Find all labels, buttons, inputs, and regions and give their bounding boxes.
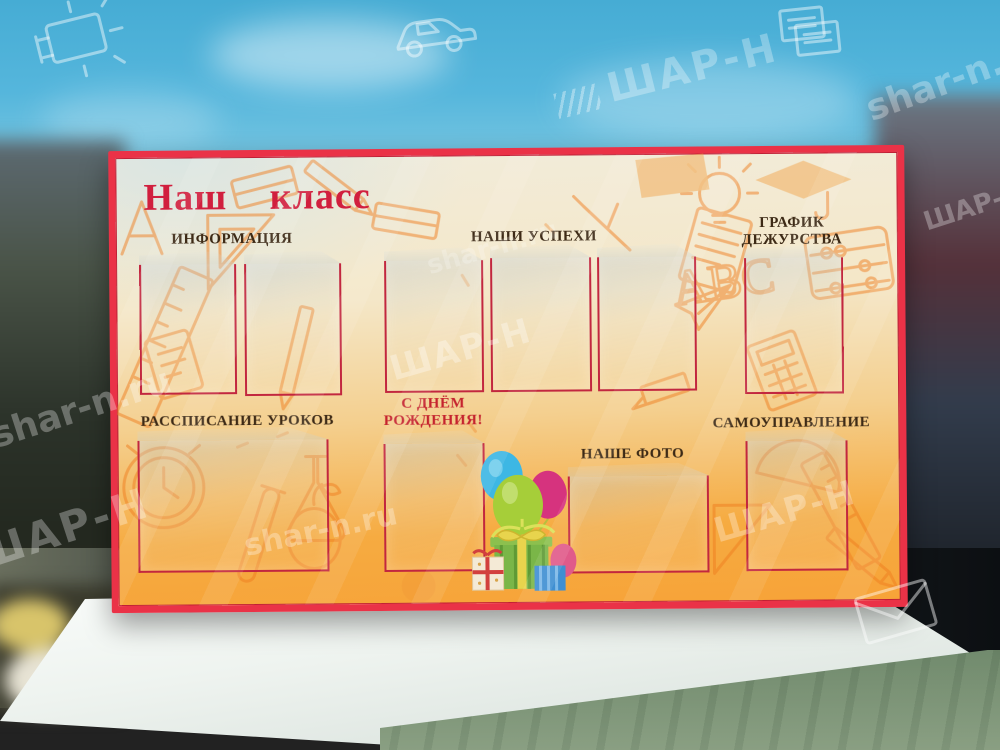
birthday-line-2: РОЖДЕНИЯ! [384, 412, 483, 429]
section-label-info: ИНФОРМАЦИЯ [171, 231, 292, 249]
board-title: Наш класс [143, 174, 370, 220]
section-label-our-photo: НАШЕ ФОТО [581, 446, 685, 464]
pocket-schedule [137, 439, 329, 572]
grad-cap-doodle [755, 160, 851, 199]
section-label-duty: ГРАФИК ДЕЖУРСТВА [741, 214, 842, 249]
birthday-gifts-clipart [470, 448, 581, 595]
photo-scene: ABC Наш класс ИНФОРМАЦИЯ НАШИ [0, 0, 1000, 750]
pocket-selfgov [745, 440, 848, 571]
pocket-info-1 [139, 264, 237, 395]
pocket-duty [744, 257, 844, 394]
duty-line-2: ДЕЖУРСТВА [742, 231, 843, 248]
gift-ribbon [517, 537, 526, 589]
pocket-success-1 [384, 260, 484, 393]
birthday-line-1: С ДНЁМ [401, 395, 465, 412]
cloud [210, 20, 450, 90]
section-label-success: НАШИ УСПЕХИ [471, 228, 597, 246]
classroom-info-board: ABC Наш класс ИНФОРМАЦИЯ НАШИ [108, 145, 908, 613]
pocket-our-photo [568, 475, 710, 573]
pocket-info-2 [244, 263, 342, 396]
section-label-birthday: С ДНЁМ РОЖДЕНИЯ! [384, 395, 483, 430]
duty-line-1: ГРАФИК [759, 215, 824, 232]
pocket-success-3 [597, 257, 697, 392]
pocket-success-2 [490, 257, 592, 392]
section-label-schedule: РАССПИСАНИЕ УРОКОВ [141, 412, 334, 431]
